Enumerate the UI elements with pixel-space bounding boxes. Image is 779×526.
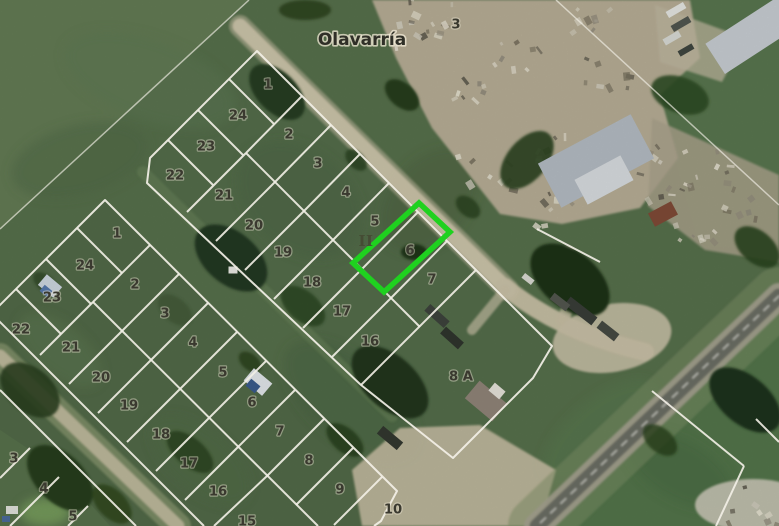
parcel-number-label: 20 (92, 371, 110, 386)
parcel-number-label: 17 (333, 305, 351, 320)
parcel-number-label: 22 (12, 323, 30, 338)
parcel-number-label: 24 (76, 259, 94, 274)
parcel-number-label: 5 (218, 366, 227, 381)
parcel-number-label: 19 (274, 246, 292, 261)
section-numeral-label: II (358, 232, 373, 250)
street-name-label: Olavarría (318, 30, 406, 50)
parcel-number-label: 3 (451, 18, 460, 33)
parcel-number-label: 6 (405, 244, 414, 259)
satellite-map[interactable]: 1242233224215206197181716124223322421520… (0, 0, 779, 526)
map-container: 1242233224215206197181716124223322421520… (0, 0, 779, 526)
parcel-number-label: 3 (313, 157, 322, 172)
parcel-number-label: 7 (427, 273, 436, 288)
parcel-number-label: 2 (284, 128, 293, 143)
parcel-number-label: 16 (361, 335, 379, 350)
parcel-number-label: 17 (180, 457, 198, 472)
parcel-number-label: 2 (130, 278, 139, 293)
parcel-number-label: 4 (188, 336, 197, 351)
parcel-number-label: 5 (370, 215, 379, 230)
parcel-number-label: 10 (384, 503, 402, 518)
parcel-number-label: 22 (166, 169, 184, 184)
parcel-number-label: 8 (304, 454, 313, 469)
parcel-number-label: 20 (245, 219, 263, 234)
parcel-number-label: 3 (9, 452, 18, 467)
parcel-number-label: 23 (43, 291, 61, 306)
parcel-number-label: 18 (152, 428, 170, 443)
parcel-number-label: 1 (112, 227, 121, 242)
parcel-number-label: 4 (39, 482, 48, 497)
parcel-number-label: 9 (335, 483, 344, 498)
parcel-number-label: 24 (229, 109, 247, 124)
parcel-number-label: 6 (247, 396, 256, 411)
parcel-number-label: 19 (120, 399, 138, 414)
parcel-number-label: 16 (209, 485, 227, 500)
parcel-number-label: 5 (68, 510, 77, 525)
parcel-number-label: 18 (303, 276, 321, 291)
parcel-number-label: 21 (62, 341, 80, 356)
parcel-number-label: 23 (197, 140, 215, 155)
parcel-number-label: 3 (160, 307, 169, 322)
parcel-number-label: 15 (238, 515, 256, 526)
image-grain (0, 0, 779, 526)
parcel-number-label: 4 (341, 186, 350, 201)
parcel-number-label: 7 (275, 425, 284, 440)
parcel-number-label: 1 (263, 78, 272, 93)
parcel-8a-label: 8 A (449, 370, 474, 385)
parcel-number-label: 21 (215, 189, 233, 204)
